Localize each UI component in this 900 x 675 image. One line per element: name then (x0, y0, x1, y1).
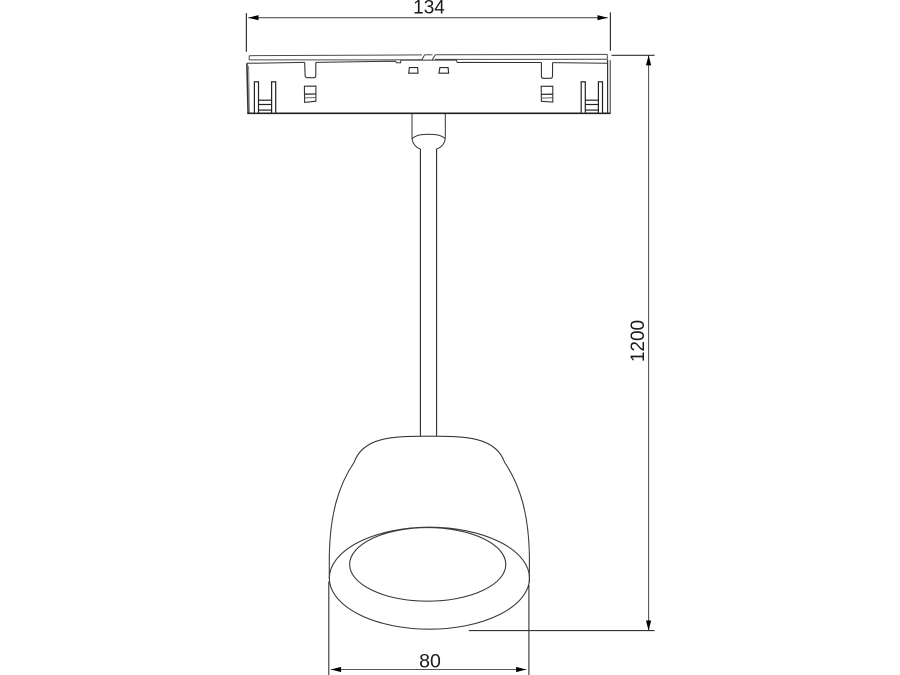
svg-text:134: 134 (413, 0, 445, 19)
svg-text:1200: 1200 (628, 320, 649, 362)
